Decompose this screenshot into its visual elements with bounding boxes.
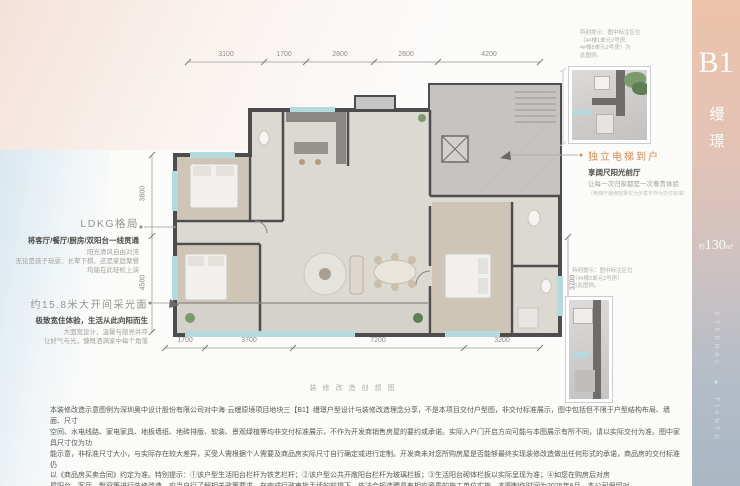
disclaimer-line: 本装修改造示意图例为深圳奥中设计股份有限公司对中海·云缦原境项目地块三【B1】缦… (50, 406, 682, 428)
inset-note-1-line: 特别提示：图中标注区位 (580, 30, 672, 38)
inset-note-2-line: （4#楼2单元2号房） (572, 276, 664, 284)
inset-1-image (572, 70, 647, 140)
area-label: 约130m² (692, 236, 740, 254)
disclaimer-line: 能示意，非标准尺寸大小，与实际存在较大差异，买受人需根据个人需要及商品房实际尺寸… (50, 450, 682, 472)
inset-rendering-1 (568, 66, 651, 144)
ldkg-line: 无论是孩子玩耍、长辈下棋、还是家庭聚餐 (7, 257, 139, 266)
inset-note-2-line: 特别提示：图中标注区位 (572, 268, 664, 276)
disclaimer-text: 本装修改造示意图例为深圳奥中设计股份有限公司对中海·云缦原境项目地块三【B1】缦… (50, 406, 682, 486)
lighting-line: 大面宽设计，温馨与敞亮并存 (16, 328, 148, 337)
lighting-headline: 极致宽住体验，生活从此向阳而生 (16, 315, 148, 326)
inset-note-1: 特别提示：图中标注区位 （4#楼1单元2号房、 4#楼5单元2号房）为 此图例。 (580, 30, 672, 60)
inset-note-1-line: （4#楼1单元2号房、 (580, 38, 672, 46)
watermark: ETERNAL ✦ TIANFU (713, 312, 720, 442)
dim-top-4: 2600 (384, 51, 428, 58)
dim-bottom-4: 3200 (480, 337, 524, 344)
elevator-line: 让每一次归家都是一次尊贵体验 (588, 180, 700, 189)
leader-lines (140, 151, 583, 308)
inset-rendering-2 (565, 296, 613, 403)
brochure-page: 3100 1700 2800 2600 4200 1700 3700 7200 … (0, 0, 740, 486)
dimension-ticks (149, 59, 571, 351)
inset-note-2-line: 为此图例。 (572, 283, 664, 291)
annotation-elevator: 独立电梯到户 享阔尺阳光前厅 让每一次归家都是一次尊贵体验 （电梯厅装修效果仅为… (588, 148, 700, 197)
watermark-top: ETERNAL (713, 312, 719, 368)
inset-note-1-line: 此图例。 (580, 53, 672, 61)
disclaimer-line: 以《商品房买卖合同》约定为准。特别提示：①该户型生活阳台栏杆为铁艺栏杆；②该户型… (50, 471, 682, 482)
lighting-line: 让好气与光，慷慨洒满家中每个角落 (16, 337, 148, 346)
dim-bottom-3: 7200 (356, 337, 400, 344)
dim-top-3: 2800 (318, 51, 362, 58)
lighting-title: 约15.8米大开间采光面 (16, 296, 148, 311)
area-value: 130 (705, 238, 726, 253)
dim-bottom-1: 1700 (163, 337, 207, 344)
dim-top-1: 3100 (204, 51, 248, 58)
ldkg-line: 均能在此轻松上演 (7, 266, 139, 275)
sidebar-panel: B1 缦璟 约130m² ETERNAL ✦ TIANFU (692, 0, 740, 486)
watermark-bottom: TIANFU (713, 397, 719, 443)
dim-left-1: 3800 (140, 179, 147, 209)
unit-label: B1 (692, 46, 740, 80)
elevator-note: （电梯厅装修效果仅为示意不作为交付标准） (588, 190, 700, 197)
ldkg-headline: 将客厅/餐厅/厨房/双阳台一线贯通 (7, 235, 139, 246)
area-unit: m² (726, 243, 734, 251)
disclaimer-line: 屋阳台、客厅、飘窗等进行装修改造，应当自行了解相关政策要求，在完成行政审批手续的… (50, 482, 682, 486)
inset-note-1-line: 4#楼5单元2号房）为 (580, 45, 672, 53)
elevator-title: 独立电梯到户 (588, 148, 700, 163)
inset-note-2: 特别提示：图中标注区位 （4#楼2单元2号房） 为此图例。 (572, 268, 664, 291)
dim-top-5: 4200 (467, 51, 511, 58)
ldkg-title: LDKG格局 (7, 216, 139, 231)
series-name-vertical: 缦璟 (706, 106, 727, 160)
diamond-ornament-icon: ✦ (713, 378, 720, 387)
annotation-lighting: 约15.8米大开间采光面 极致宽住体验，生活从此向阳而生 大面宽设计，温馨与敞亮… (16, 296, 148, 346)
dim-left-2: 4500 (140, 268, 147, 298)
ldkg-line: 阳光清风自由对流 (7, 248, 139, 257)
dim-bottom-2: 3700 (227, 337, 271, 344)
plan-caption: 装修改造创想图 (265, 383, 445, 393)
dim-top-2: 1700 (262, 51, 306, 58)
elevator-headline: 享阔尺阳光前厅 (588, 167, 700, 178)
inset-2-image (569, 300, 609, 399)
annotation-ldkg: LDKG格局 将客厅/餐厅/厨房/双阳台一线贯通 阳光清风自由对流 无论是孩子玩… (7, 216, 139, 275)
disclaimer-line: 空间、水电线路、家电家具、地板墙纸、地砖排版、软装、景观绿植等均非交付标准展示，… (50, 428, 682, 450)
